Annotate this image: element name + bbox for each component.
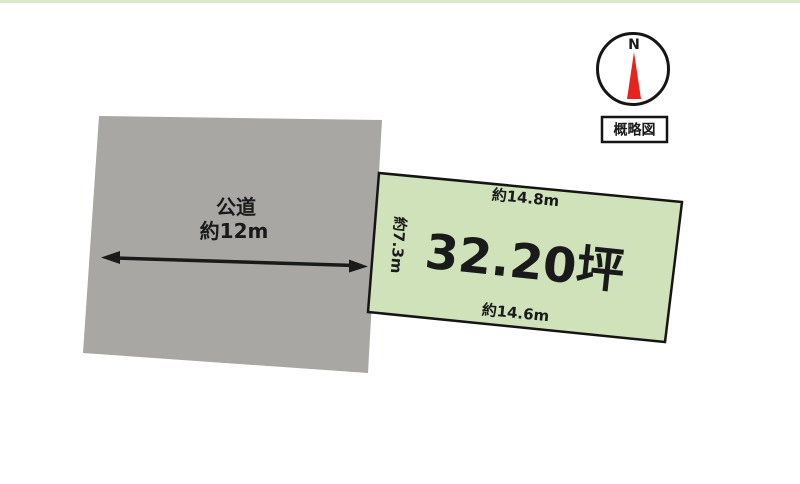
compass-north-label: N [628,37,640,53]
caption-box: 概略図 [602,117,667,142]
top-edge-strip [0,0,800,3]
caption-label: 概略図 [614,122,656,139]
road-name-label: 公道 [216,195,256,219]
road-area-shape [83,116,382,373]
schematic-page: 公道 約12m 約14.8m 32.20坪 約14.6m 約7.3m N 概略図 [0,0,800,484]
road-width-label: 約12m [200,219,269,243]
compass: N [598,34,669,105]
schematic-canvas: 公道 約12m 約14.8m 32.20坪 約14.6m 約7.3m N 概略図 [0,0,800,484]
